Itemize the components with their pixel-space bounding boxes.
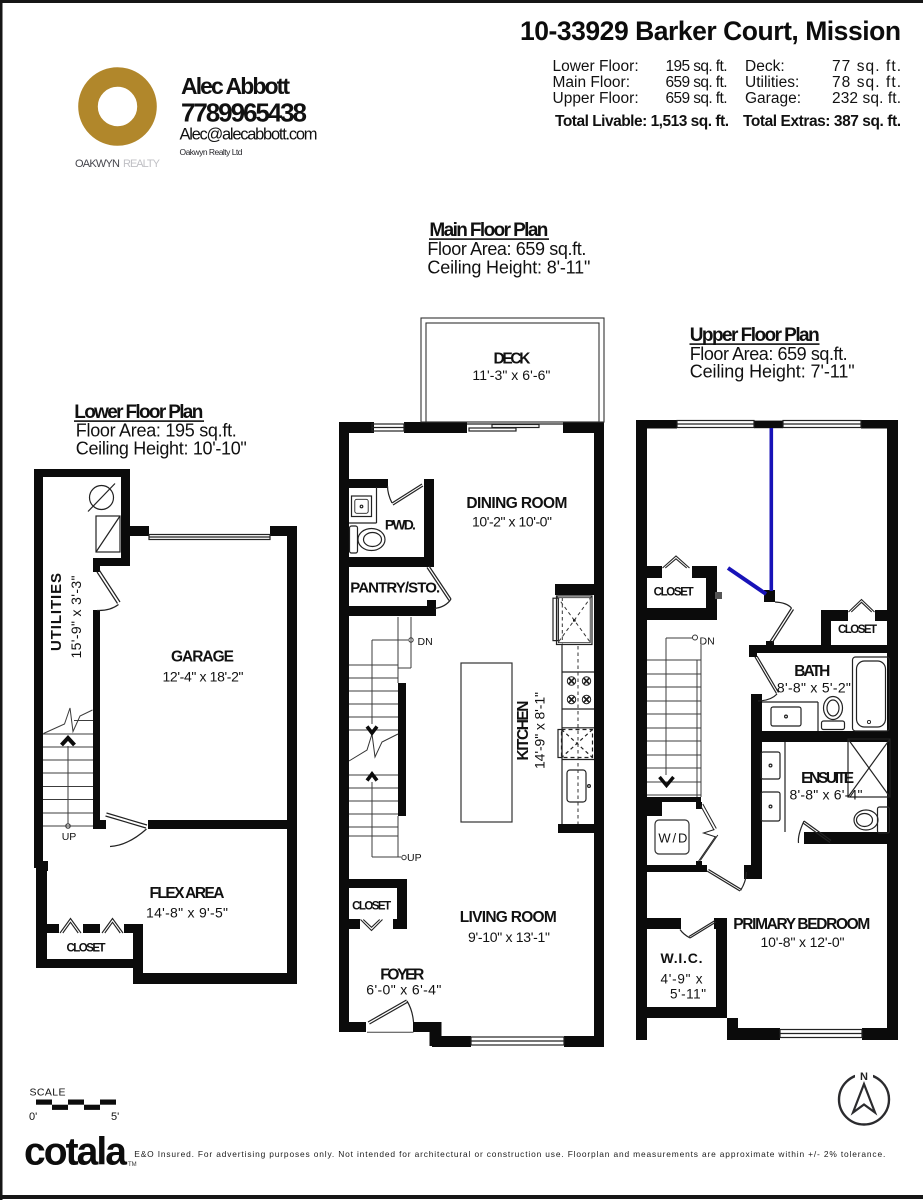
svg-text:Ceiling Height: 8'-11": Ceiling Height: 8'-11" <box>427 258 590 278</box>
svg-text:PRIMARY BEDROOM: PRIMARY BEDROOM <box>733 916 870 933</box>
svg-text:Total Livable: 1,513 sq. ft.: Total Livable: 1,513 sq. ft. <box>555 113 729 130</box>
svg-text:12'-4" x 18'-2": 12'-4" x 18'-2" <box>163 669 244 685</box>
svg-text:14'-8" x 9'-5": 14'-8" x 9'-5" <box>146 905 228 921</box>
svg-text:77 sq. ft.: 77 sq. ft. <box>832 58 901 75</box>
svg-text:DN: DN <box>418 636 433 648</box>
svg-text:CLOSET: CLOSET <box>654 587 694 599</box>
svg-text:Oakwyn Realty Ltd: Oakwyn Realty Ltd <box>180 147 243 157</box>
svg-text:8'-8" x 6'-4": 8'-8" x 6'-4" <box>790 787 863 803</box>
svg-text:Floor Area: 195 sq.ft.: Floor Area: 195 sq.ft. <box>76 421 237 441</box>
svg-text:5': 5' <box>111 1111 119 1123</box>
svg-text:PWD.: PWD. <box>385 516 416 532</box>
svg-text:Main Floor:: Main Floor: <box>553 74 631 91</box>
svg-text:14'-9" x 8'-1": 14'-9" x 8'-1" <box>532 692 548 769</box>
svg-text:Floor Area: 659 sq.ft.: Floor Area: 659 sq.ft. <box>427 239 586 259</box>
svg-text:10'-8" x 12'-0": 10'-8" x 12'-0" <box>761 934 845 950</box>
svg-text:9'-10" x 13'-1": 9'-10" x 13'-1" <box>468 929 550 945</box>
svg-text:TM: TM <box>128 1162 137 1168</box>
svg-text:LIVING ROOM: LIVING ROOM <box>460 909 557 926</box>
svg-text:Ceiling Height: 7'-11": Ceiling Height: 7'-11" <box>690 362 855 382</box>
svg-text:Garage:: Garage: <box>745 90 801 107</box>
svg-text:Alec Abbott: Alec Abbott <box>181 73 290 99</box>
svg-text:Upper Floor Plan: Upper Floor Plan <box>690 325 820 346</box>
svg-text:W/D: W/D <box>658 831 687 846</box>
svg-text:CLOSET: CLOSET <box>67 943 106 955</box>
svg-text:Upper Floor:: Upper Floor: <box>553 90 639 107</box>
svg-text:UP: UP <box>407 852 422 864</box>
svg-text:659 sq. ft.: 659 sq. ft. <box>666 90 728 107</box>
svg-text:Deck:: Deck: <box>745 58 785 75</box>
svg-text:DECK: DECK <box>494 351 532 368</box>
svg-text:BATH: BATH <box>794 663 830 680</box>
svg-text:KITCHEN: KITCHEN <box>515 701 532 761</box>
svg-text:10-33929 Barker Court, Mission: 10-33929 Barker Court, Mission <box>520 16 901 46</box>
svg-text:DINING ROOM: DINING ROOM <box>466 495 567 512</box>
svg-text:659 sq. ft.: 659 sq. ft. <box>666 74 728 91</box>
svg-text:0': 0' <box>29 1111 37 1123</box>
svg-text:SCALE: SCALE <box>30 1087 66 1099</box>
svg-text:W.I.C.: W.I.C. <box>661 950 703 966</box>
svg-text:UP: UP <box>62 831 77 843</box>
svg-text:GARAGE: GARAGE <box>171 649 234 666</box>
svg-text:8'-8" x 5'-2": 8'-8" x 5'-2" <box>777 680 851 696</box>
svg-text:DN: DN <box>700 636 715 648</box>
svg-text:cotala: cotala <box>24 1131 127 1174</box>
svg-text:6'-0" x 6'-4": 6'-0" x 6'-4" <box>366 982 441 998</box>
svg-text:E&O Insured. For advertising p: E&O Insured. For advertising purposes on… <box>134 1149 885 1159</box>
svg-text:Alec@alecabbott.com: Alec@alecabbott.com <box>180 126 318 144</box>
svg-text:11'-3" x 6'-6": 11'-3" x 6'-6" <box>472 367 550 383</box>
svg-text:Ceiling Height: 10'-10": Ceiling Height: 10'-10" <box>76 439 247 459</box>
svg-text:ENSUITE: ENSUITE <box>801 770 854 787</box>
svg-text:Main Floor Plan: Main Floor Plan <box>429 220 548 241</box>
svg-text:15'-9" x 3'-3": 15'-9" x 3'-3" <box>68 575 84 658</box>
svg-text:195 sq. ft.: 195 sq. ft. <box>666 58 728 75</box>
svg-text:Utilities:: Utilities: <box>745 74 799 91</box>
svg-text:7789965438: 7789965438 <box>181 98 307 128</box>
svg-text:FLEX AREA: FLEX AREA <box>150 885 225 902</box>
svg-text:Total Extras: 387 sq. ft.: Total Extras: 387 sq. ft. <box>743 113 901 130</box>
svg-text:OAKWYN: OAKWYN <box>75 158 121 170</box>
svg-text:10'-2" x 10'-0": 10'-2" x 10'-0" <box>472 514 552 530</box>
svg-text:REALTY: REALTY <box>123 158 161 170</box>
svg-text:4'-9" x: 4'-9" x <box>661 972 703 987</box>
svg-text:5'-11": 5'-11" <box>670 987 706 1002</box>
svg-text:PANTRY/STO.: PANTRY/STO. <box>350 579 440 596</box>
svg-text:CLOSET: CLOSET <box>838 624 877 636</box>
svg-text:CLOSET: CLOSET <box>352 901 391 913</box>
svg-text:UTILITIES: UTILITIES <box>48 573 65 651</box>
svg-text:232 sq. ft.: 232 sq. ft. <box>832 90 901 107</box>
svg-text:78 sq. ft.: 78 sq. ft. <box>832 74 901 91</box>
svg-text:Lower Floor:: Lower Floor: <box>553 58 639 75</box>
